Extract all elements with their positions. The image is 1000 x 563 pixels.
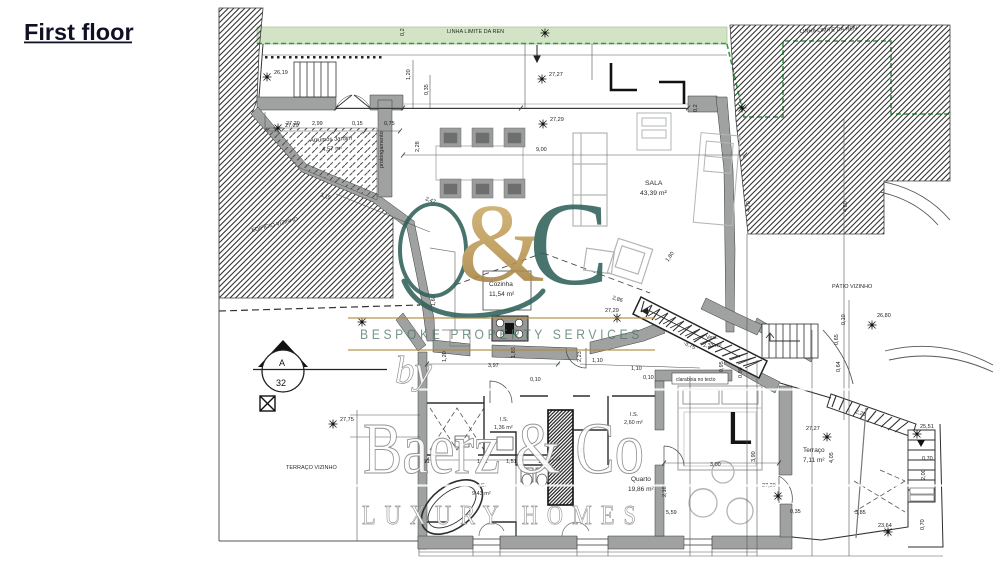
svg-text:2,28: 2,28 — [415, 141, 421, 152]
svg-text:1,20: 1,20 — [442, 351, 448, 362]
svg-text:27,75: 27,75 — [340, 417, 354, 423]
svg-text:23,64: 23,64 — [878, 523, 892, 529]
svg-text:3,85: 3,85 — [855, 510, 866, 516]
svg-text:BESPOKE PROPERTY SERVICES: BESPOKE PROPERTY SERVICES — [360, 326, 643, 342]
svg-text:0,64: 0,64 — [836, 361, 842, 372]
svg-text:1,86: 1,86 — [511, 347, 517, 358]
svg-text:0,2: 0,2 — [400, 28, 406, 36]
svg-text:0,35: 0,35 — [424, 84, 430, 95]
svg-text:0,10: 0,10 — [530, 377, 541, 383]
svg-text:SALA: SALA — [645, 180, 663, 187]
svg-text:3,90: 3,90 — [751, 451, 757, 462]
svg-text:LINHA LIMITE DA REN: LINHA LIMITE DA REN — [447, 29, 504, 35]
svg-text:3,97: 3,97 — [488, 363, 499, 369]
svg-text:L: L — [727, 402, 753, 454]
svg-text:2,23: 2,23 — [577, 351, 583, 362]
svg-text:0,70: 0,70 — [922, 456, 933, 462]
svg-text:Baerz & Co: Baerz & Co — [363, 408, 644, 489]
svg-text:0,65: 0,65 — [834, 334, 840, 345]
svg-text:Vest.: Vest. — [706, 335, 719, 341]
svg-text:0,10: 0,10 — [643, 375, 654, 381]
svg-text:1,10: 1,10 — [631, 366, 642, 372]
svg-text:2,33 m²: 2,33 m² — [703, 343, 722, 349]
svg-text:4,60: 4,60 — [843, 201, 849, 212]
svg-text:C: C — [529, 177, 609, 310]
svg-text:3,00: 3,00 — [710, 462, 721, 468]
svg-text:0,90: 0,90 — [738, 367, 744, 378]
svg-text:4,57 m²: 4,57 m² — [322, 146, 343, 153]
svg-text:LUXURY HOMES: LUXURY HOMES — [362, 500, 645, 530]
svg-text:27,27: 27,27 — [806, 426, 820, 432]
svg-text:2,99: 2,99 — [312, 121, 323, 127]
svg-text:2,00: 2,00 — [921, 469, 927, 480]
svg-text:26,19: 26,19 — [274, 70, 288, 76]
svg-text:A: A — [279, 358, 285, 368]
svg-text:0,35: 0,35 — [790, 509, 801, 515]
svg-text:2,10: 2,10 — [662, 486, 668, 497]
svg-text:43,39 m²: 43,39 m² — [640, 190, 668, 197]
svg-text:25,51: 25,51 — [920, 424, 934, 430]
svg-text:4,05: 4,05 — [829, 452, 835, 463]
svg-text:0,75: 0,75 — [384, 121, 395, 127]
svg-text:7,11 m²: 7,11 m² — [803, 457, 825, 464]
svg-text:0,2: 0,2 — [693, 104, 699, 112]
svg-text:1,20: 1,20 — [406, 69, 412, 80]
svg-text:First floor: First floor — [24, 19, 134, 45]
svg-text:0,70: 0,70 — [920, 519, 926, 530]
svg-text:27,27: 27,27 — [549, 72, 563, 78]
svg-text:prolongamento: prolongamento — [379, 131, 385, 168]
svg-text:TERRAÇO VIZINHO: TERRAÇO VIZINHO — [286, 465, 337, 471]
svg-text:26,80: 26,80 — [877, 313, 891, 319]
svg-text:0,15: 0,15 — [352, 121, 363, 127]
svg-text:by: by — [395, 349, 433, 392]
svg-text:PÁTIO VIZINHO: PÁTIO VIZINHO — [832, 283, 873, 290]
svg-text:1,10: 1,10 — [592, 358, 603, 364]
svg-text:claraboia no tecto: claraboia no tecto — [676, 377, 716, 383]
svg-text:32: 32 — [276, 378, 286, 388]
svg-text:0,95: 0,95 — [719, 361, 725, 372]
svg-text:4,70: 4,70 — [746, 201, 752, 212]
svg-text:5,59: 5,59 — [666, 510, 677, 516]
svg-text:27,29: 27,29 — [286, 121, 300, 127]
svg-text:0,10: 0,10 — [841, 314, 847, 325]
svg-text:Terraço: Terraço — [803, 447, 825, 454]
svg-text:27,29: 27,29 — [550, 117, 564, 123]
svg-text:9,00: 9,00 — [536, 147, 547, 153]
